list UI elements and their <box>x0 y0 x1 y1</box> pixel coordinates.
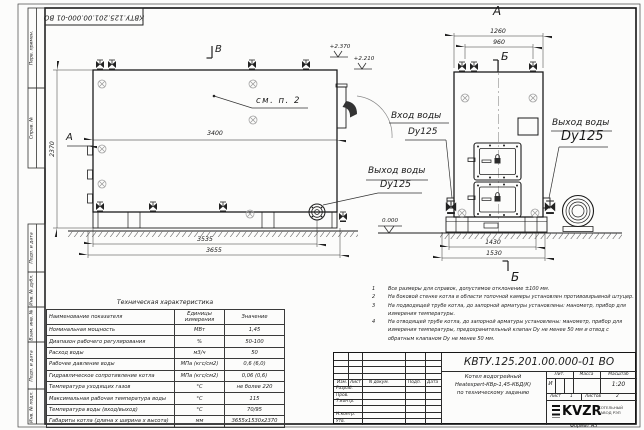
tb-scale-value: 1:20 <box>612 382 625 388</box>
table-row: Габариты котла (длина х ширина х высота)… <box>47 416 285 427</box>
tb-hdr-list: Лист <box>350 381 361 385</box>
section-mark-bottom: Б <box>511 271 519 283</box>
tb-role-nkontr: Н.контр. <box>336 413 355 417</box>
drawing-sheet: КВТУ.125.201.00.000-01 ВО Перв. примен. … <box>0 0 644 430</box>
see-note-ref: см. п. 2 <box>256 97 301 106</box>
front-view-label: А <box>493 5 501 17</box>
tech-table: Наименование показателя Единицы измерени… <box>46 309 285 428</box>
table-row: Температура уходящих газов°Сне более 220 <box>47 381 285 392</box>
list-item: 4На отводящей трубе котла, до запорной а… <box>372 318 636 343</box>
elev-2210: +2.210 <box>354 57 375 63</box>
dim-3400: 3400 <box>207 131 223 137</box>
tb-sheet-value: 1 <box>570 395 573 399</box>
frame-strip-label: Инв. № дубл. <box>30 274 35 305</box>
tb-role-tkontr: Т.контр. <box>336 400 355 404</box>
section-mark-top: Б <box>501 51 509 62</box>
frame-strip-label: Инв. № подл. <box>30 391 35 423</box>
table-row: Максимальная рабочая температура воды°С1… <box>47 393 285 404</box>
tb-lit-label: Лит. <box>555 373 565 377</box>
front-view-fittings <box>446 62 555 217</box>
dim-3655: 3655 <box>206 248 222 254</box>
tb-lit-value: И <box>548 382 552 388</box>
frame-strip-label: Подп. и дата <box>30 232 35 263</box>
top-stamp: КВТУ.125.201.00.000-01 ВО <box>44 13 144 20</box>
title-block: Изм. Лист N докум. Подп. Дата Разраб. Пр… <box>333 352 636 424</box>
tb-scale-label: Масштаб <box>608 373 628 377</box>
tb-role-prov: Пров. <box>336 394 349 398</box>
elev-0000: 0.000 <box>382 219 398 225</box>
dim-2370: 2370 <box>50 141 56 157</box>
view-arrow-a: А <box>66 133 73 143</box>
table-row: Расход водым3/ч50 <box>47 347 285 358</box>
tb-sheets-label: Листов <box>585 395 601 399</box>
tb-hdr-sign: Подп. <box>408 381 421 385</box>
frame-strip-label: Перв. примен. <box>30 31 35 66</box>
tech-table-title: Техническая характеристика <box>117 300 213 306</box>
elev-2370: +2.370 <box>330 45 351 51</box>
tb-hdr-doc: N докум. <box>369 381 389 385</box>
fan <box>563 196 594 232</box>
outlet-left-label: Выход воды <box>368 167 425 176</box>
kvzr-logo-subtext: КОТЕЛЬНЫЙ ЗАВОД РЭП <box>598 406 623 416</box>
tech-col-value: Значение <box>225 310 285 325</box>
table-row: Номинальная мощностьМВт1,45 <box>47 325 285 336</box>
list-item: 2На боковой стенке котла в области топоч… <box>372 293 636 301</box>
tb-product-name-1: Котел водогрейный <box>465 375 522 380</box>
view-mark-b: В <box>215 45 222 55</box>
frame-strip-label: Справ. № <box>30 117 35 139</box>
inlet-label: Вход воды <box>391 112 441 121</box>
tech-col-units: Единицы измерения <box>175 310 225 325</box>
notes-list: 1Все размеры для справок, допустимое отк… <box>372 285 636 343</box>
frame-strip-label: Подп. и дата <box>30 350 35 381</box>
dim-960: 960 <box>493 40 505 46</box>
lower-door <box>468 182 521 217</box>
tb-role-razrab: Разраб. <box>336 387 353 391</box>
tb-mass-label: Масса <box>580 373 594 377</box>
tb-product-name-3: по техническому заданию <box>457 391 529 396</box>
upper-door <box>468 143 521 180</box>
tb-product-name-2: Heatexpert-КВр-1,45-КБД(К) <box>455 383 531 388</box>
list-item: 3На подводящей трубе котла, до запорной … <box>372 302 636 319</box>
tb-hdr-date: Дата <box>427 381 438 385</box>
format-label: Формат А3 <box>570 425 597 430</box>
tb-hdr-izm: Изм. <box>337 381 347 385</box>
outlet-left-size: Dy125 <box>380 180 411 190</box>
frame-strip-label: Взам. инв. № <box>30 309 35 340</box>
outlet-right-label: Выход воды <box>552 119 609 128</box>
kvzr-logo-bars-icon <box>552 405 560 418</box>
side-view-dimensions <box>53 46 428 258</box>
dim-1260: 1260 <box>490 29 506 35</box>
tb-sheets-value: 2 <box>616 395 619 399</box>
dim-3535: 3535 <box>197 237 213 243</box>
tb-role-utv: Утв. <box>336 420 345 424</box>
table-row: Гидравлическое сопротивление котлаМПа (к… <box>47 370 285 381</box>
table-row: Температура воды (вход/выход)°С70/95 <box>47 404 285 415</box>
table-row: Рабочее давление водыМПа (кгс/см2)0,6 (6… <box>47 359 285 370</box>
list-item: 1Все размеры для справок, допустимое отк… <box>372 285 636 293</box>
side-view-fittings <box>96 60 347 222</box>
kvzr-logo: KVZR <box>562 405 602 418</box>
front-view <box>378 60 622 239</box>
tech-col-name: Наименование показателя <box>47 310 175 325</box>
tb-doc-number: КВТУ.125.201.00.000-01 ВО <box>464 357 614 368</box>
tb-sheet-label: Лист <box>550 395 561 399</box>
dim-1530: 1530 <box>486 251 502 257</box>
outlet-right-size: Dy125 <box>561 130 604 143</box>
inlet-size: Dy125 <box>408 128 437 137</box>
dim-1430: 1430 <box>485 240 501 246</box>
table-row: Диапазон рабочего регулирования%50-100 <box>47 336 285 347</box>
